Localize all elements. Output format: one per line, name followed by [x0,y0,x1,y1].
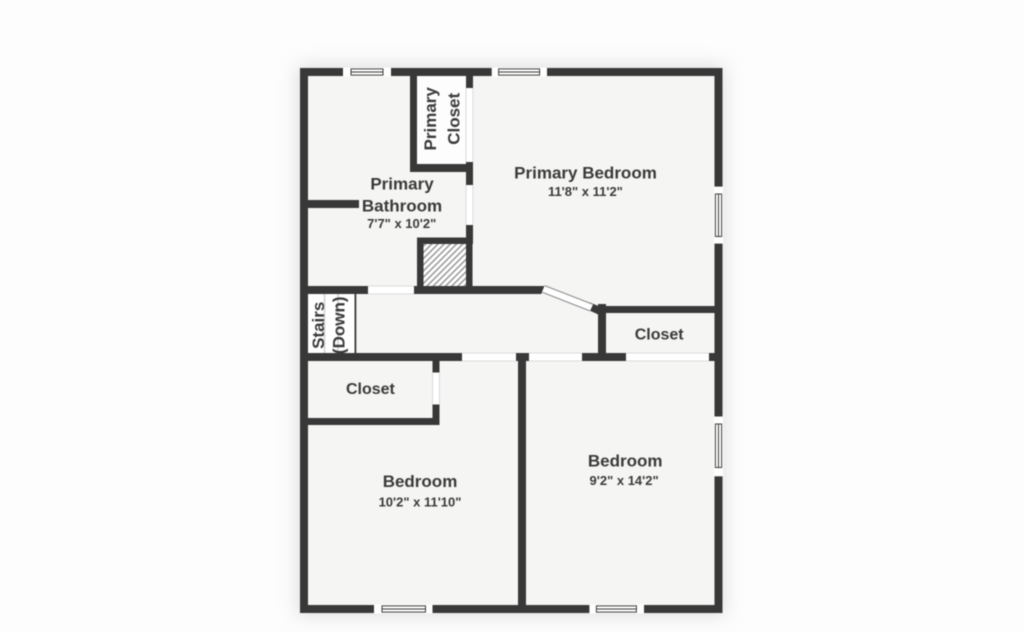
svg-text:Bedroom: Bedroom [588,452,663,471]
svg-text:Primary Bedroom: Primary Bedroom [514,163,657,182]
svg-text:10'2" x 11'10": 10'2" x 11'10" [379,495,462,510]
svg-text:Closet: Closet [444,92,463,144]
svg-text:Primary: Primary [421,87,440,151]
svg-text:9'2" x 14'2": 9'2" x 14'2" [590,473,659,488]
svg-text:11'8" x 11'2": 11'8" x 11'2" [548,184,623,199]
svg-text:Closet: Closet [346,381,396,398]
svg-text:Primary: Primary [370,175,434,194]
svg-text:Bedroom: Bedroom [383,472,458,491]
svg-text:Stairs: Stairs [309,302,328,349]
svg-text:Closet: Closet [635,327,685,344]
svg-text:7'7" x 10'2": 7'7" x 10'2" [367,216,436,231]
svg-text:(Down): (Down) [330,297,349,355]
svg-text:Bathroom: Bathroom [362,196,442,215]
